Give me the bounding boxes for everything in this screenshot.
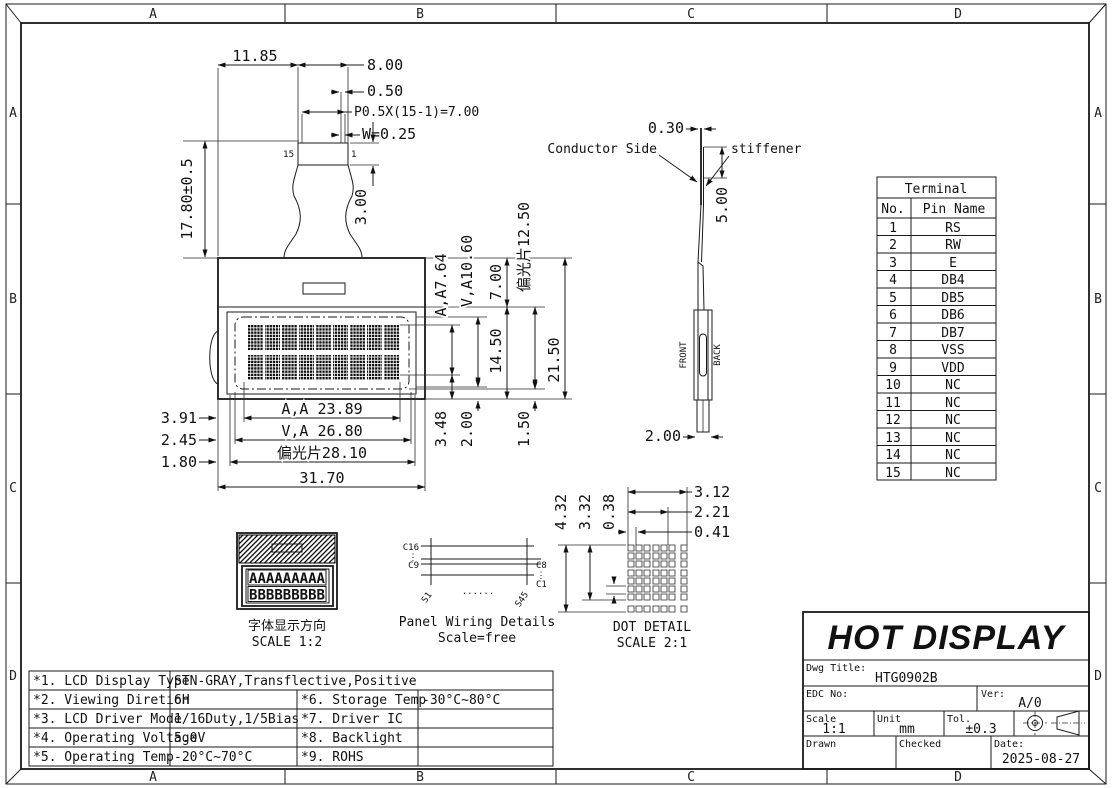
spec-key: *7. Driver IC [301,712,403,727]
fpc-dimensions: 11.85 8.00 0.50 P0.5X(15-1)=7.00 W=0.25 … [178,47,479,258]
terminal-pin: RS [945,221,961,236]
terminal-pin: DB5 [941,291,964,306]
terminal-pin: NC [945,466,961,481]
pin-1-label: 1 [351,150,356,160]
drawing-canvas: A B C D A B C D A B C D A B C D 15 1 11.… [0,0,1112,788]
spec-value: 5.0V [174,731,205,746]
fpc-tail-view: 15 1 [283,143,362,258]
zone-left-d: D [9,669,17,684]
terminal-no: 3 [889,256,897,271]
title-block: HOT DISPLAY Dwg Title: HTG0902B EDC No: … [803,612,1089,769]
back-side-label: BACK [713,344,723,366]
dim-finger-width: W=0.25 [362,125,416,143]
zone-right-a: A [1094,106,1102,121]
spec-key: *2. Viewing Diretion [33,693,190,708]
spec-key: *8. Backlight [301,731,403,746]
terminal-col-no: No. [881,202,904,217]
terminal-no: 4 [889,273,897,288]
font-row-b: BBBBBBBBB [249,588,325,604]
terminal-table: Terminal No. Pin Name 1RS 2RW 3E 4DB4 5D… [877,177,996,481]
wiring-caption: Panel Wiring Details [399,615,556,630]
spec-key: *9. ROHS [301,750,364,765]
edc-no-label: EDC No: [806,689,848,700]
terminal-no: 7 [889,326,897,341]
wiring-scale: Scale=free [438,631,516,646]
dot-detail-scale: SCALE 2:1 [617,636,687,651]
zone-top-c: C [687,7,695,22]
dim-dot-h1: 4.32 [552,494,570,530]
wiring-hdots: ...... [462,587,495,597]
date-label: Date: [994,739,1024,750]
terminal-no: 11 [885,396,901,411]
dim-margin-348: 3.48 [432,411,450,447]
unit-value: mm [899,722,915,737]
dot-detail-view: 3.12 2.21 0.41 4.32 3.32 0.38 DOT DETAIL… [552,483,730,651]
pin-15-label: 15 [283,150,294,160]
dim-total-height: 21.50 [545,337,563,382]
dim-fpc-thickness: 0.30 [648,119,684,137]
terminal-no: 1 [889,221,897,236]
scale-value: 1:1 [822,722,845,737]
dim-margin-180: 1.80 [161,453,197,471]
spec-value: -30°C~80°C [422,693,500,708]
terminal-no: 13 [885,431,901,446]
tolerance-value: ±0.3 [965,722,996,737]
zone-letters: A B C D A B C D A B C D A B C D [9,7,1102,785]
dim-margin-391: 3.91 [161,409,197,427]
terminal-no: 8 [889,343,897,358]
projection-symbol-icon [1023,711,1085,735]
drawn-label: Drawn [806,739,836,750]
spec-key: *4. Operating Voltage [33,731,198,746]
terminal-pin: VDD [941,361,965,376]
dim-aa-height: A,A7.64 [432,253,450,316]
dim-bezel-height: 7.00 [487,264,505,300]
dwg-title-value: HTG0902B [875,671,938,686]
drawing-sheet: A B C D A B C D A B C D A B C D 15 1 11.… [0,0,1112,788]
terminal-no: 12 [885,413,901,428]
terminal-pin: NC [945,448,961,463]
terminal-pin: DB4 [941,273,965,288]
dim-polarizer-height: 偏光片12.50 [515,202,533,292]
dim-dot-h3: 0.38 [600,494,618,530]
dot-detail-caption: DOT DETAIL [613,620,691,635]
font-direction-view: AAAAAAAAA BBBBBBBBB 字体显示方向 SCALE 1:2 [237,533,337,650]
terminal-pin: RW [945,238,961,253]
dwg-title-label: Dwg Title: [806,663,866,674]
lcd-front-view [210,258,425,399]
spec-key: *3. LCD Driver Mode [33,712,182,727]
stiffener-label: stiffener [731,142,802,157]
wiring-s45-label: S45 [514,590,532,609]
dim-margin-200: 2.00 [458,411,476,447]
dim-strip-height: 3.00 [352,189,370,225]
dim-dot-w2: 2.21 [694,503,730,521]
terminal-no: 6 [889,308,897,323]
spec-value: -20°C~70°C [174,750,252,765]
date-value: 2025-08-27 [1002,752,1080,767]
version-value: A/0 [1018,696,1041,711]
sheet-border [6,4,1106,784]
dim-panel-height: 14.50 [487,328,505,373]
zone-left-c: C [9,481,17,496]
terminal-pin: DB6 [941,308,964,323]
terminal-no: 5 [889,291,897,306]
dim-dot-w1: 3.12 [694,483,730,501]
zone-right-b: B [1094,292,1102,307]
dim-margin-245: 2.45 [161,431,197,449]
version-label: Ver: [981,689,1005,700]
terminal-pin: VSS [941,343,964,358]
dim-aa-width: A,A 23.89 [281,400,362,418]
terminal-pin: NC [945,431,961,446]
dim-module-thickness: 2.00 [645,427,681,445]
terminal-pin: E [949,256,957,271]
dim-polarizer-width: 偏光片28.10 [277,444,367,462]
dim-dot-w3: 0.41 [694,523,730,541]
zone-left-b: B [9,292,17,307]
dim-strip-width: 8.00 [367,56,403,74]
zone-right-d: D [1094,669,1102,684]
zone-bottom-c: C [687,770,695,785]
font-view-caption: 字体显示方向 [248,618,326,634]
character-matrix [248,325,399,380]
terminal-pin: NC [945,396,961,411]
company-logo: HOT DISPLAY [827,619,1066,657]
wiring-c9-label: C9 [408,561,419,571]
zone-bottom-a: A [149,770,157,785]
terminal-col-pin: Pin Name [923,202,986,217]
spec-table: *1. LCD Display Type STN-GRAY,Transflect… [29,671,553,766]
terminal-table-title: Terminal [905,182,968,197]
conductor-side-label: Conductor Side [547,142,657,157]
dim-margin-150: 1.50 [515,411,533,447]
terminal-pin: DB7 [941,326,964,341]
spec-value: 1/16Duty,1/5Bias [174,712,299,727]
terminal-pin: NC [945,413,961,428]
zone-bottom-b: B [416,770,424,785]
terminal-no: 10 [885,378,901,393]
zone-bottom-d: D [954,770,962,785]
terminal-no: 9 [889,361,897,376]
dim-va-height: V,A10.60 [458,235,476,307]
zone-left-a: A [9,106,17,121]
wiring-c1-label: C1 [536,580,547,590]
unit-label: Unit [877,714,901,725]
wiring-s1-label: S1 [420,591,434,606]
wiring-c8-label: C8 [536,561,547,571]
panel-wiring-view: C16 ⋮ C9 C8 ⋮ C1 S1 ...... S45 Panel Wir… [399,538,556,646]
dim-stiffener-length: 5.00 [713,187,731,223]
side-view: FRONT BACK 0.30 Conductor Side stiffener… [547,119,801,445]
dim-dot-h2: 3.32 [576,494,594,530]
dim-pitch-gap: 0.50 [367,82,403,100]
dim-pitch: P0.5X(15-1)=7.00 [354,105,479,120]
dim-tail-height: 17.80±0.5 [178,158,196,239]
zone-right-c: C [1094,481,1102,496]
spec-value: STN-GRAY,Transflective,Positive [174,674,417,689]
terminal-no: 15 [885,466,901,481]
font-view-scale: SCALE 1:2 [252,635,322,650]
zone-top-b: B [416,7,424,22]
terminal-pin: NC [945,378,961,393]
dim-fpc-offset: 11.85 [232,47,277,65]
dim-va-width: V,A 26.80 [281,422,362,440]
front-side-label: FRONT [679,341,689,369]
spec-key: *6. Storage Temp [301,693,426,708]
zone-top-d: D [954,7,962,22]
spec-key: *5. Operating Temp [33,750,174,765]
wiring-c16-label: C16 [403,543,419,553]
dim-total-width: 31.70 [299,469,344,487]
terminal-no: 14 [885,448,901,463]
checked-label: Checked [899,739,941,750]
font-row-a: AAAAAAAAA [249,571,326,587]
spec-value: 6H [174,693,190,708]
terminal-no: 2 [889,238,897,253]
spec-key: *1. LCD Display Type [33,674,190,689]
zone-top-a: A [149,7,157,22]
